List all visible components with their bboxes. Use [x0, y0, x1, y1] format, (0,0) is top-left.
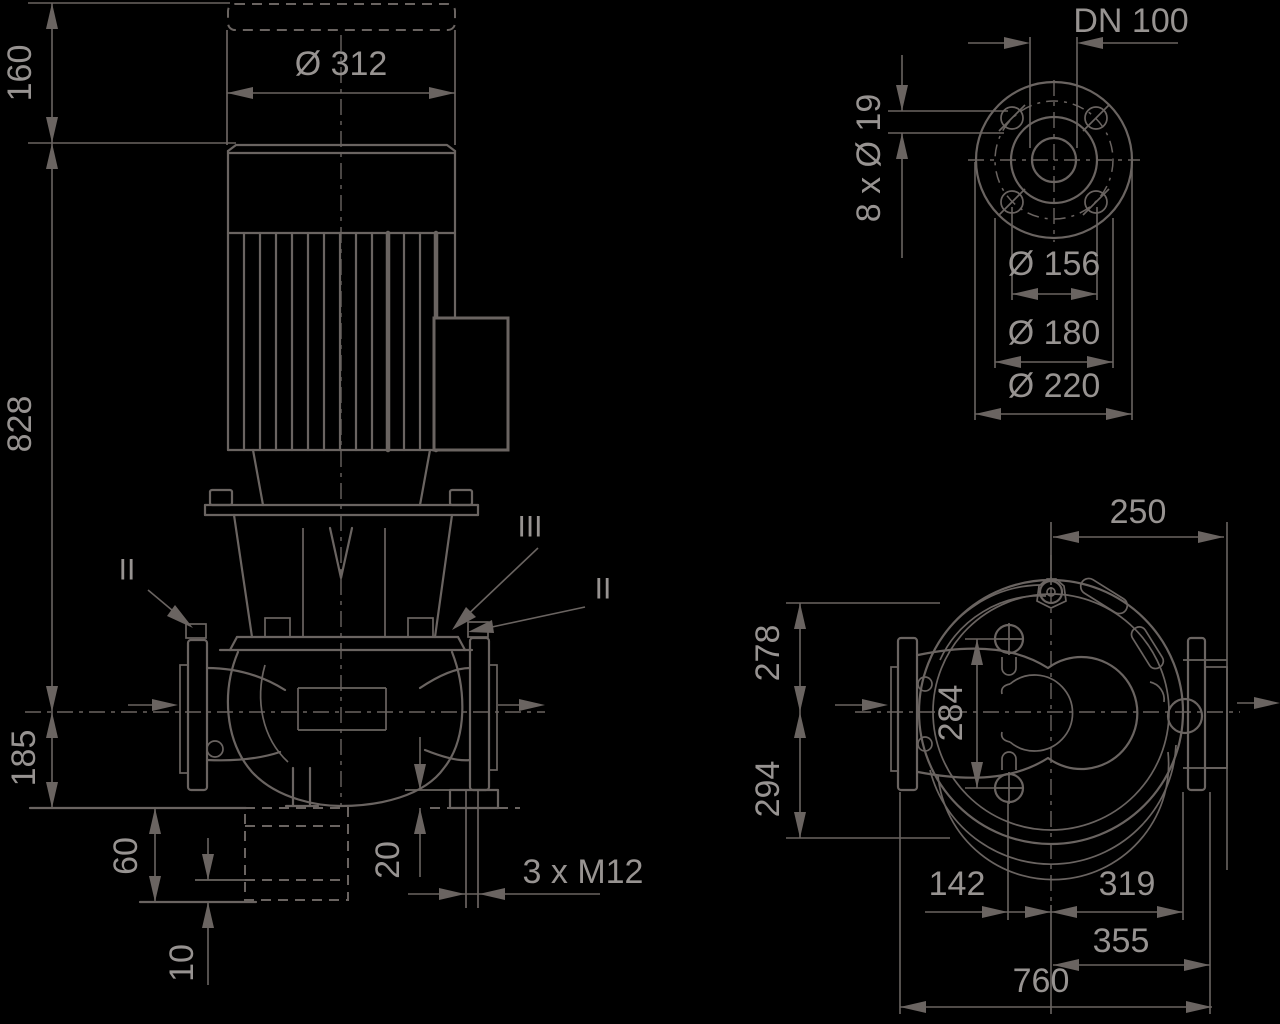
dim-319-label: 319	[1099, 865, 1156, 903]
dim-828-label: 828	[1, 396, 39, 453]
flow-arrows	[128, 699, 545, 711]
outlet-arrow	[519, 699, 545, 711]
dim-left-stack: 160 828 185	[1, 3, 236, 808]
foundation-block	[30, 790, 520, 902]
bell-window-left	[265, 618, 290, 637]
motor-fins	[244, 233, 436, 450]
discharge-port	[1168, 699, 1202, 733]
flange-bolt-left	[210, 490, 232, 505]
dim-312-label: Ø 312	[295, 45, 388, 83]
d156-label: Ø 156	[1008, 245, 1101, 283]
discharge-flange	[470, 638, 489, 790]
bell-window-right	[408, 618, 433, 637]
foot-holes	[995, 623, 1023, 804]
dim-355-label: 355	[1093, 922, 1150, 960]
dim-250-label: 250	[1110, 493, 1167, 531]
dim-284-label: 284	[932, 685, 970, 742]
front-view: 160 828 185 Ø 312 60 10	[1, 3, 643, 985]
section-labels: II III II	[119, 511, 612, 634]
dim-284: 284	[932, 639, 995, 788]
dim-294-label: 294	[749, 761, 787, 818]
dim-bottom-stack: 142 319 355 760	[900, 792, 1212, 1014]
callout-m12: 3 x M12	[408, 853, 643, 900]
dim-dn100: DN 100	[968, 2, 1189, 148]
dim-10: 10	[163, 838, 214, 985]
plan-inlet-arrow	[862, 699, 888, 711]
dim-10-label: 10	[163, 944, 201, 982]
d220-label: Ø 220	[1008, 367, 1101, 405]
plan-view: 250 278 294 284	[749, 493, 1280, 1014]
flange-bolt-right	[450, 490, 472, 505]
plan-flow-arrows	[835, 697, 1280, 711]
dim-760-label: 760	[1013, 962, 1070, 1000]
dn100-label: DN 100	[1073, 2, 1188, 40]
volute-casing	[180, 622, 498, 908]
dim-160-label: 160	[1, 45, 39, 102]
dim-278-label: 278	[749, 625, 787, 682]
pump-dimension-drawing: 160 828 185 Ø 312 60 10	[0, 0, 1280, 1024]
plan-outlet-arrow	[1254, 697, 1280, 709]
flange-view: DN 100 8 x Ø 19 Ø 156 Ø 180	[850, 2, 1189, 420]
dim-20: 20	[369, 737, 426, 879]
dim-20-label: 20	[369, 841, 407, 879]
dim-185-label: 185	[5, 730, 43, 787]
inlet-arrow	[152, 699, 178, 711]
m12-label: 3 x M12	[523, 853, 644, 891]
terminal-box	[434, 318, 508, 450]
bolt-holes-label: 8 x Ø 19	[850, 94, 888, 223]
suction-flange	[188, 640, 207, 790]
fan-cover-dashed	[228, 4, 455, 30]
d180-label: Ø 180	[1008, 314, 1101, 352]
dim-142-label: 142	[929, 865, 986, 903]
plan-suction-flange	[898, 638, 917, 790]
discharge-raised-face	[489, 665, 497, 770]
flange-circles	[968, 80, 1140, 242]
suction-raised-face	[180, 665, 188, 773]
support-foot	[450, 790, 498, 808]
drain-plug	[207, 741, 223, 757]
section-iii: III	[517, 511, 542, 544]
section-ii-right: II	[595, 573, 612, 606]
dim-60-label: 60	[107, 837, 145, 875]
section-ii-left: II	[119, 554, 136, 587]
dim-60: 60	[107, 808, 161, 902]
dim-bolt-holes: 8 x Ø 19	[850, 55, 1008, 258]
dim-250: 250	[1051, 493, 1227, 870]
